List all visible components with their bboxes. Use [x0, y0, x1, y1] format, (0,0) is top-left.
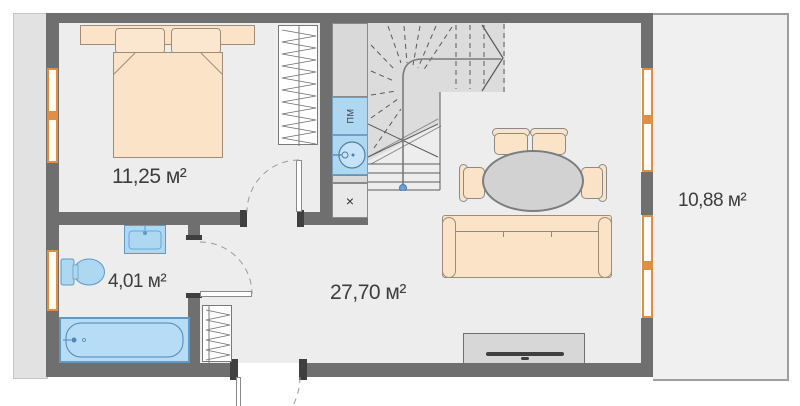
sofa-armrest-right: [598, 217, 612, 278]
hallway-closet: [202, 305, 232, 362]
bed-pillow-right: [171, 28, 221, 54]
living-window-upper-handle: [644, 115, 651, 124]
bedroom-door-swing: [245, 158, 303, 216]
staircase: [368, 23, 505, 191]
tv-stand: [463, 333, 585, 364]
tv-foot: [521, 357, 529, 360]
sofa-seat-tick1: [503, 231, 504, 237]
wall-right-seg-mid: [641, 172, 653, 215]
bathroom-area-label: 4,01 м²: [108, 271, 166, 293]
kitchen-spacer: [332, 175, 368, 183]
living-area-label: 27,70 м²: [330, 281, 406, 305]
dishwasher: ПМ: [332, 97, 368, 135]
wall-top: [46, 13, 653, 23]
bedroom-wardrobe: [278, 25, 318, 145]
sofa-armrest-left: [442, 217, 456, 278]
bathroom-window: [47, 250, 58, 311]
kitchen-counter: [332, 23, 368, 97]
tv-screen: [486, 352, 564, 356]
adjacent-wall-band: [13, 13, 48, 379]
wall-bottom-left: [46, 363, 237, 377]
wardrobe-hatch: [279, 26, 319, 146]
wall-kitchen-stub: [332, 218, 368, 225]
wall-bedroom-stair: [320, 23, 332, 225]
bathtub: [59, 317, 190, 363]
kitchen-sink: [333, 136, 367, 174]
bedroom-window-handle: [49, 111, 56, 120]
wall-right-seg-bottom: [641, 318, 653, 377]
hob-unit: ×: [332, 183, 368, 218]
dining-table: [482, 150, 584, 212]
sofa-back-seam: [455, 231, 599, 232]
bed-pillow-left: [115, 28, 165, 54]
wall-bedroom-bottom: [59, 212, 247, 225]
living-window-lower-handle: [644, 261, 651, 270]
kitchen-sink-unit: [332, 135, 368, 175]
wall-right-seg-top: [641, 13, 653, 68]
wall-bottom-right: [300, 363, 653, 377]
entry-door-swing: [237, 377, 303, 406]
bed-blanket-folds: [113, 52, 223, 92]
bathroom-sink: [124, 225, 166, 254]
closet-hatch: [203, 306, 233, 363]
bathroom-door-swing: [198, 240, 256, 298]
handrail-post-dot: [400, 185, 407, 192]
terrace-area-label: 10,88 м²: [678, 190, 746, 212]
floor-plan: ПМ ×: [0, 0, 800, 406]
dining-chair-right: [581, 167, 603, 199]
hob-symbol: ×: [346, 193, 354, 209]
sofa-seat-tick2: [551, 231, 552, 237]
toilet: [60, 255, 106, 289]
bed-headboard: [80, 25, 255, 45]
dishwasher-label: ПМ: [345, 109, 355, 124]
bedroom-area-label: 11,25 м²: [112, 165, 186, 189]
sofa: [442, 215, 612, 278]
